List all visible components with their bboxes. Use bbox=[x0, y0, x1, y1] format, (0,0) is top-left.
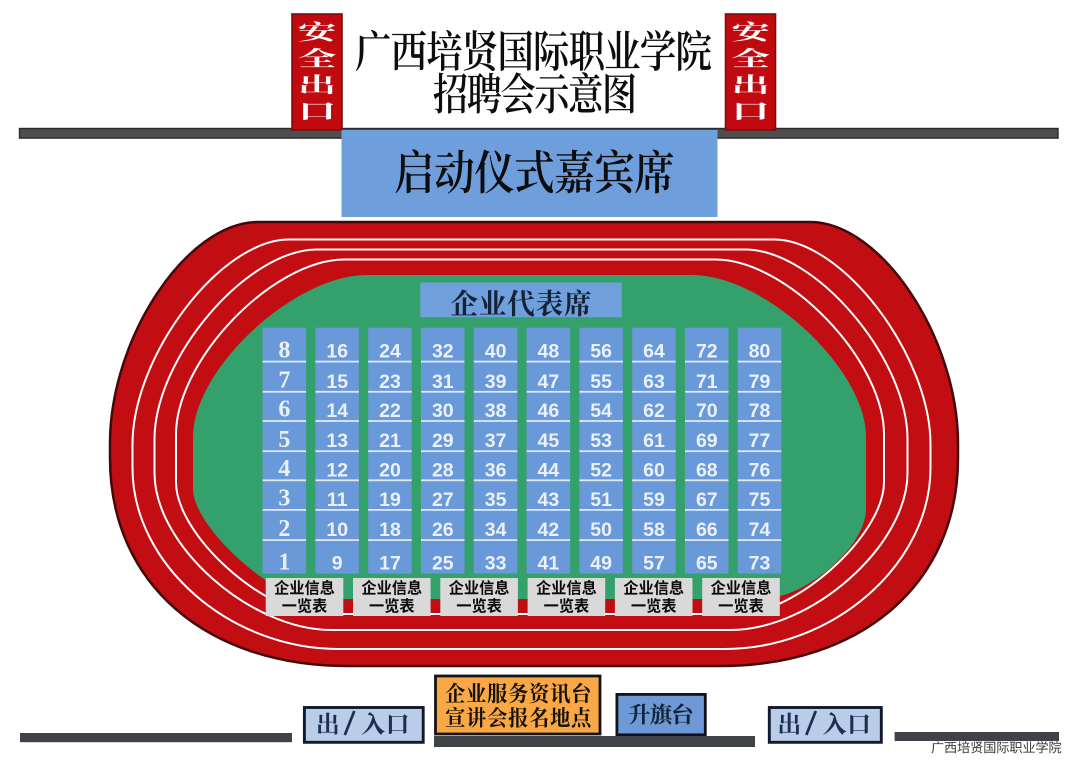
svg-text:37: 37 bbox=[485, 430, 507, 452]
svg-text:54: 54 bbox=[590, 400, 612, 422]
svg-text:56: 56 bbox=[590, 341, 612, 363]
svg-text:19: 19 bbox=[379, 489, 401, 511]
svg-text:29: 29 bbox=[432, 430, 454, 452]
svg-text:28: 28 bbox=[432, 459, 454, 481]
svg-text:36: 36 bbox=[485, 459, 507, 481]
svg-text:67: 67 bbox=[696, 489, 718, 511]
svg-text:74: 74 bbox=[749, 519, 771, 541]
svg-text:46: 46 bbox=[538, 400, 560, 422]
svg-text:11: 11 bbox=[327, 489, 348, 511]
svg-text:15: 15 bbox=[326, 371, 348, 393]
svg-text:1: 1 bbox=[278, 549, 290, 575]
svg-text:76: 76 bbox=[749, 459, 771, 481]
svg-text:66: 66 bbox=[696, 519, 718, 541]
svg-text:43: 43 bbox=[538, 489, 560, 511]
svg-text:18: 18 bbox=[379, 519, 401, 541]
svg-text:62: 62 bbox=[643, 400, 665, 422]
svg-text:80: 80 bbox=[749, 341, 771, 363]
svg-text:26: 26 bbox=[432, 519, 454, 541]
svg-text:50: 50 bbox=[590, 519, 612, 541]
svg-text:40: 40 bbox=[485, 341, 507, 363]
svg-text:7: 7 bbox=[278, 368, 290, 394]
svg-text:23: 23 bbox=[379, 371, 401, 393]
svg-text:75: 75 bbox=[749, 489, 771, 511]
svg-text:71: 71 bbox=[696, 371, 718, 393]
svg-text:10: 10 bbox=[326, 519, 348, 541]
svg-text:44: 44 bbox=[538, 459, 560, 481]
svg-text:16: 16 bbox=[326, 341, 348, 363]
svg-text:24: 24 bbox=[379, 341, 401, 363]
svg-text:57: 57 bbox=[643, 553, 665, 575]
svg-text:47: 47 bbox=[538, 371, 560, 393]
svg-text:42: 42 bbox=[538, 519, 560, 541]
svg-text:35: 35 bbox=[485, 489, 507, 511]
svg-text:58: 58 bbox=[643, 519, 665, 541]
svg-text:61: 61 bbox=[643, 430, 665, 452]
svg-text:77: 77 bbox=[749, 430, 771, 452]
svg-text:20: 20 bbox=[379, 459, 401, 481]
svg-text:6: 6 bbox=[278, 397, 290, 423]
svg-text:65: 65 bbox=[696, 553, 718, 575]
svg-text:22: 22 bbox=[379, 400, 401, 422]
svg-text:14: 14 bbox=[326, 400, 348, 422]
svg-text:12: 12 bbox=[326, 459, 348, 481]
svg-text:52: 52 bbox=[590, 459, 612, 481]
svg-text:64: 64 bbox=[643, 341, 665, 363]
svg-text:13: 13 bbox=[326, 430, 348, 452]
svg-text:70: 70 bbox=[696, 400, 718, 422]
svg-text:63: 63 bbox=[643, 371, 665, 393]
svg-text:68: 68 bbox=[696, 459, 718, 481]
svg-text:31: 31 bbox=[432, 371, 454, 393]
svg-text:33: 33 bbox=[485, 553, 507, 575]
svg-text:45: 45 bbox=[538, 430, 560, 452]
svg-text:8: 8 bbox=[278, 337, 290, 363]
svg-text:21: 21 bbox=[379, 430, 401, 452]
svg-text:59: 59 bbox=[643, 489, 665, 511]
svg-text:48: 48 bbox=[538, 341, 560, 363]
svg-text:53: 53 bbox=[590, 430, 612, 452]
svg-text:60: 60 bbox=[643, 459, 665, 481]
svg-text:4: 4 bbox=[278, 456, 290, 482]
svg-text:30: 30 bbox=[432, 400, 454, 422]
svg-text:38: 38 bbox=[485, 400, 507, 422]
svg-text:9: 9 bbox=[332, 553, 343, 575]
svg-text:32: 32 bbox=[432, 341, 454, 363]
svg-text:27: 27 bbox=[432, 489, 454, 511]
svg-text:78: 78 bbox=[749, 400, 771, 422]
svg-text:2: 2 bbox=[278, 516, 290, 542]
svg-text:51: 51 bbox=[590, 489, 612, 511]
svg-text:5: 5 bbox=[278, 427, 290, 453]
svg-text:55: 55 bbox=[590, 371, 612, 393]
svg-text:41: 41 bbox=[538, 553, 560, 575]
svg-text:39: 39 bbox=[485, 371, 507, 393]
svg-text:34: 34 bbox=[485, 519, 507, 541]
svg-text:73: 73 bbox=[749, 553, 771, 575]
svg-text:79: 79 bbox=[749, 371, 771, 393]
svg-text:25: 25 bbox=[432, 553, 454, 575]
svg-text:17: 17 bbox=[379, 553, 401, 575]
svg-text:72: 72 bbox=[696, 341, 718, 363]
svg-text:3: 3 bbox=[278, 486, 290, 512]
svg-text:69: 69 bbox=[696, 430, 718, 452]
svg-text:49: 49 bbox=[590, 553, 612, 575]
